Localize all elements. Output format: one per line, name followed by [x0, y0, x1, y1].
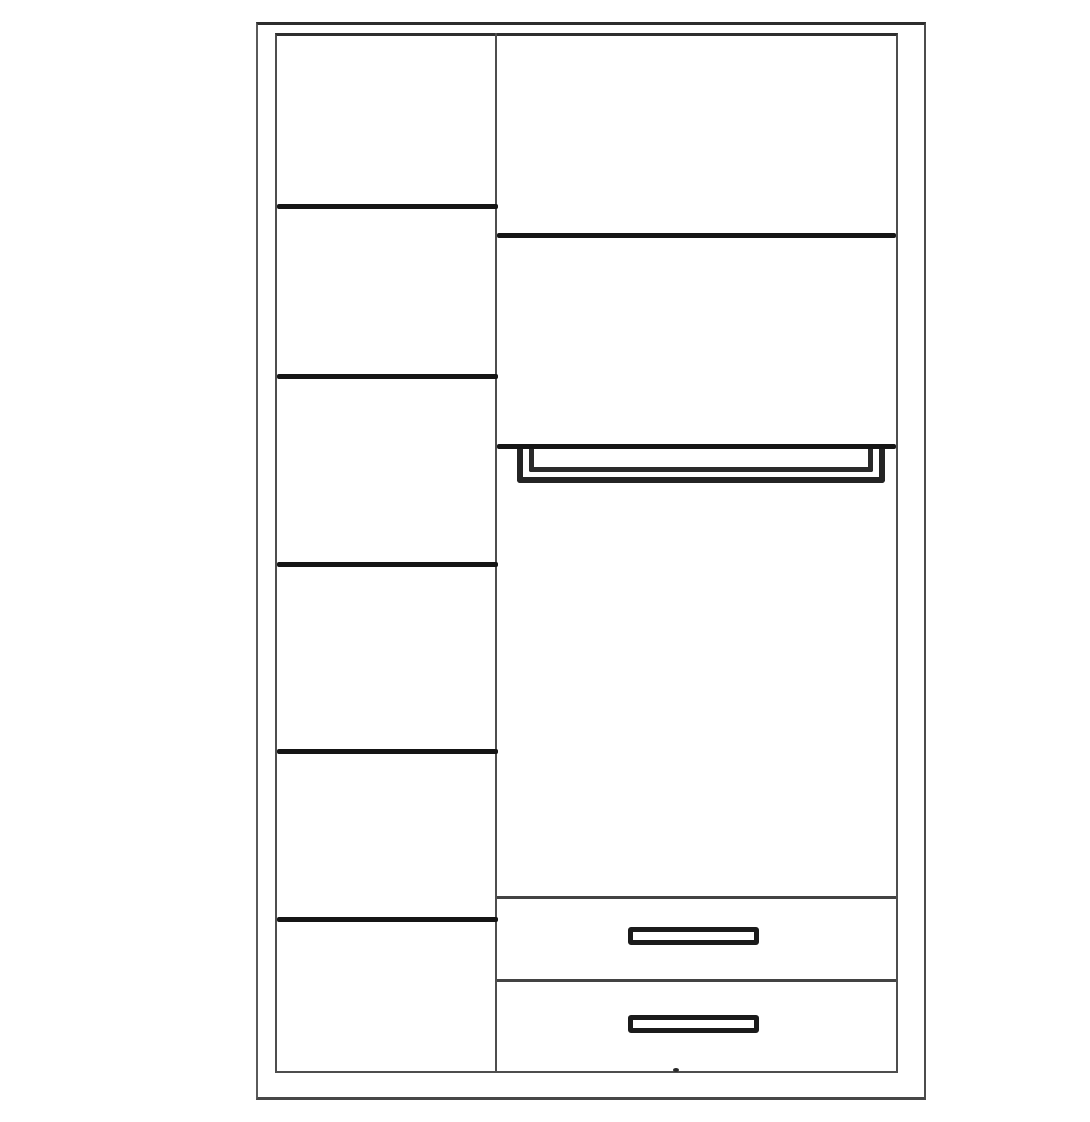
wardrobe-diagram	[40, 16, 1090, 1106]
ink-speck	[673, 1068, 679, 1072]
right-top-shelf	[497, 233, 896, 238]
drawer-handle-2	[628, 1015, 759, 1033]
drawer-divider-edge	[497, 979, 896, 982]
left-shelf-2	[277, 374, 498, 379]
drawer-handle-1	[628, 927, 759, 945]
left-shelf-4	[277, 749, 498, 754]
left-shelf-1	[277, 204, 498, 209]
hanging-rail-inner-line	[529, 449, 873, 472]
left-shelf-5	[277, 917, 498, 922]
left-shelf-3	[277, 562, 498, 567]
drawer-top-edge	[497, 896, 896, 899]
